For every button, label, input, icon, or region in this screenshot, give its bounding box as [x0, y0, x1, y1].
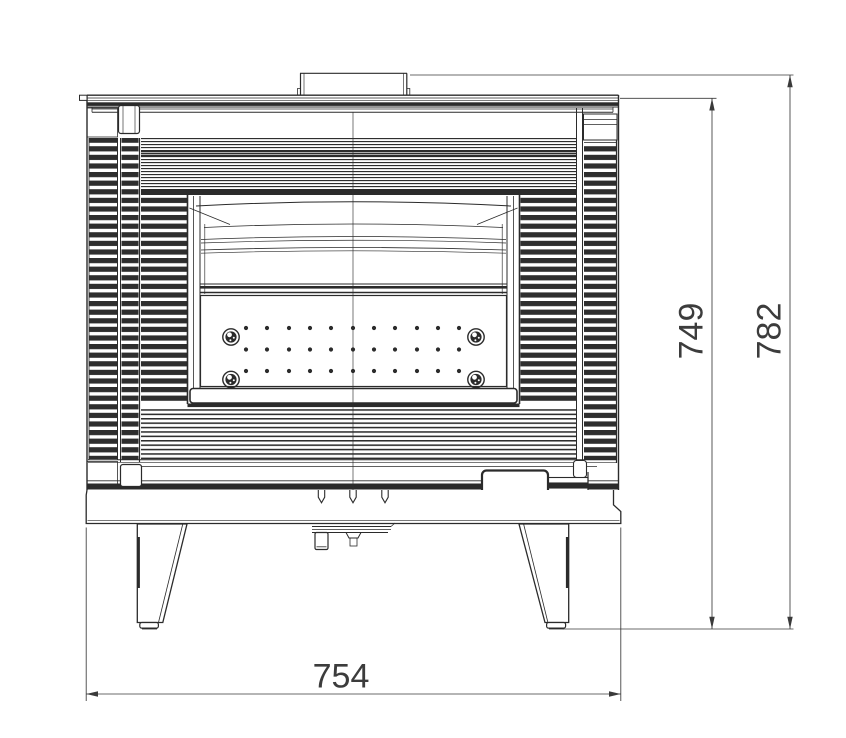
door-top-shadow [141, 189, 577, 195]
door-left-louvers [141, 195, 187, 404]
control-bolt [346, 533, 361, 539]
door-right-louvers [521, 195, 577, 404]
door-bottom-shadow [188, 404, 520, 408]
door-hinge-top [87, 106, 140, 138]
dimension-overall-height-label: 782 [751, 303, 789, 360]
flue-collar [298, 73, 410, 95]
left-edge-louvers [89, 138, 117, 459]
arrow-up [787, 75, 792, 87]
base-plinth [86, 490, 621, 524]
left-leg [137, 524, 187, 629]
arrow-left [86, 691, 98, 696]
stove-front-view [80, 73, 621, 629]
dimension-body-height: 749 [620, 98, 717, 629]
stove-dimension-drawing: 754 749 782 [0, 0, 846, 738]
arrow-down [787, 617, 792, 629]
right-leg [519, 524, 569, 629]
door-hinge-bottom [87, 462, 142, 487]
air-control-assembly [312, 523, 395, 550]
lower-louvers [141, 408, 577, 460]
technical-drawing-canvas: 754 749 782 [0, 0, 846, 738]
dimension-width-label: 754 [313, 658, 370, 696]
glass-mid-rail [200, 284, 507, 293]
arrow-up [709, 98, 714, 110]
arrow-right [609, 691, 621, 696]
right-edge-louvers [584, 142, 616, 460]
arrow-down [709, 617, 714, 629]
latch-bar-upper [548, 478, 588, 484]
hinge-strip-louvers [122, 138, 139, 460]
glass-reflection-curves [190, 202, 518, 253]
door-bottom-rail [190, 389, 517, 404]
dimension-body-height-label: 749 [673, 303, 711, 360]
right-foot [547, 623, 566, 629]
left-foot [140, 623, 159, 629]
upper-louvers [141, 138, 577, 189]
top-plate [80, 95, 619, 112]
